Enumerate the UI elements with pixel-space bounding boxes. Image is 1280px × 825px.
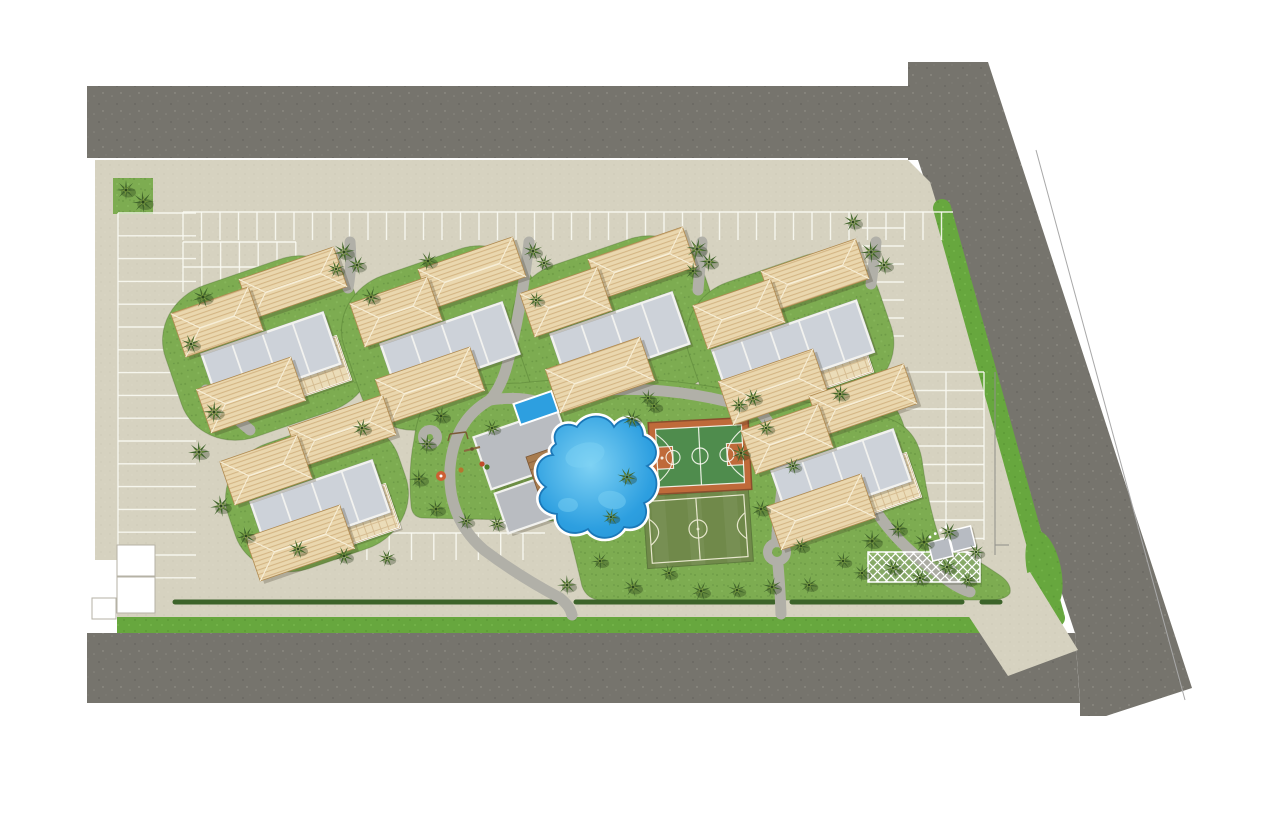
- palm-tree: [116, 180, 136, 200]
- site-plan-canvas: [0, 0, 1280, 825]
- swimming-pool: [537, 416, 656, 537]
- site-plan-page: [0, 0, 1280, 825]
- road-top: [87, 86, 955, 158]
- soccer-field: [643, 489, 754, 568]
- grass-strip-bottom: [117, 617, 1008, 633]
- road-bottom: [87, 633, 1080, 703]
